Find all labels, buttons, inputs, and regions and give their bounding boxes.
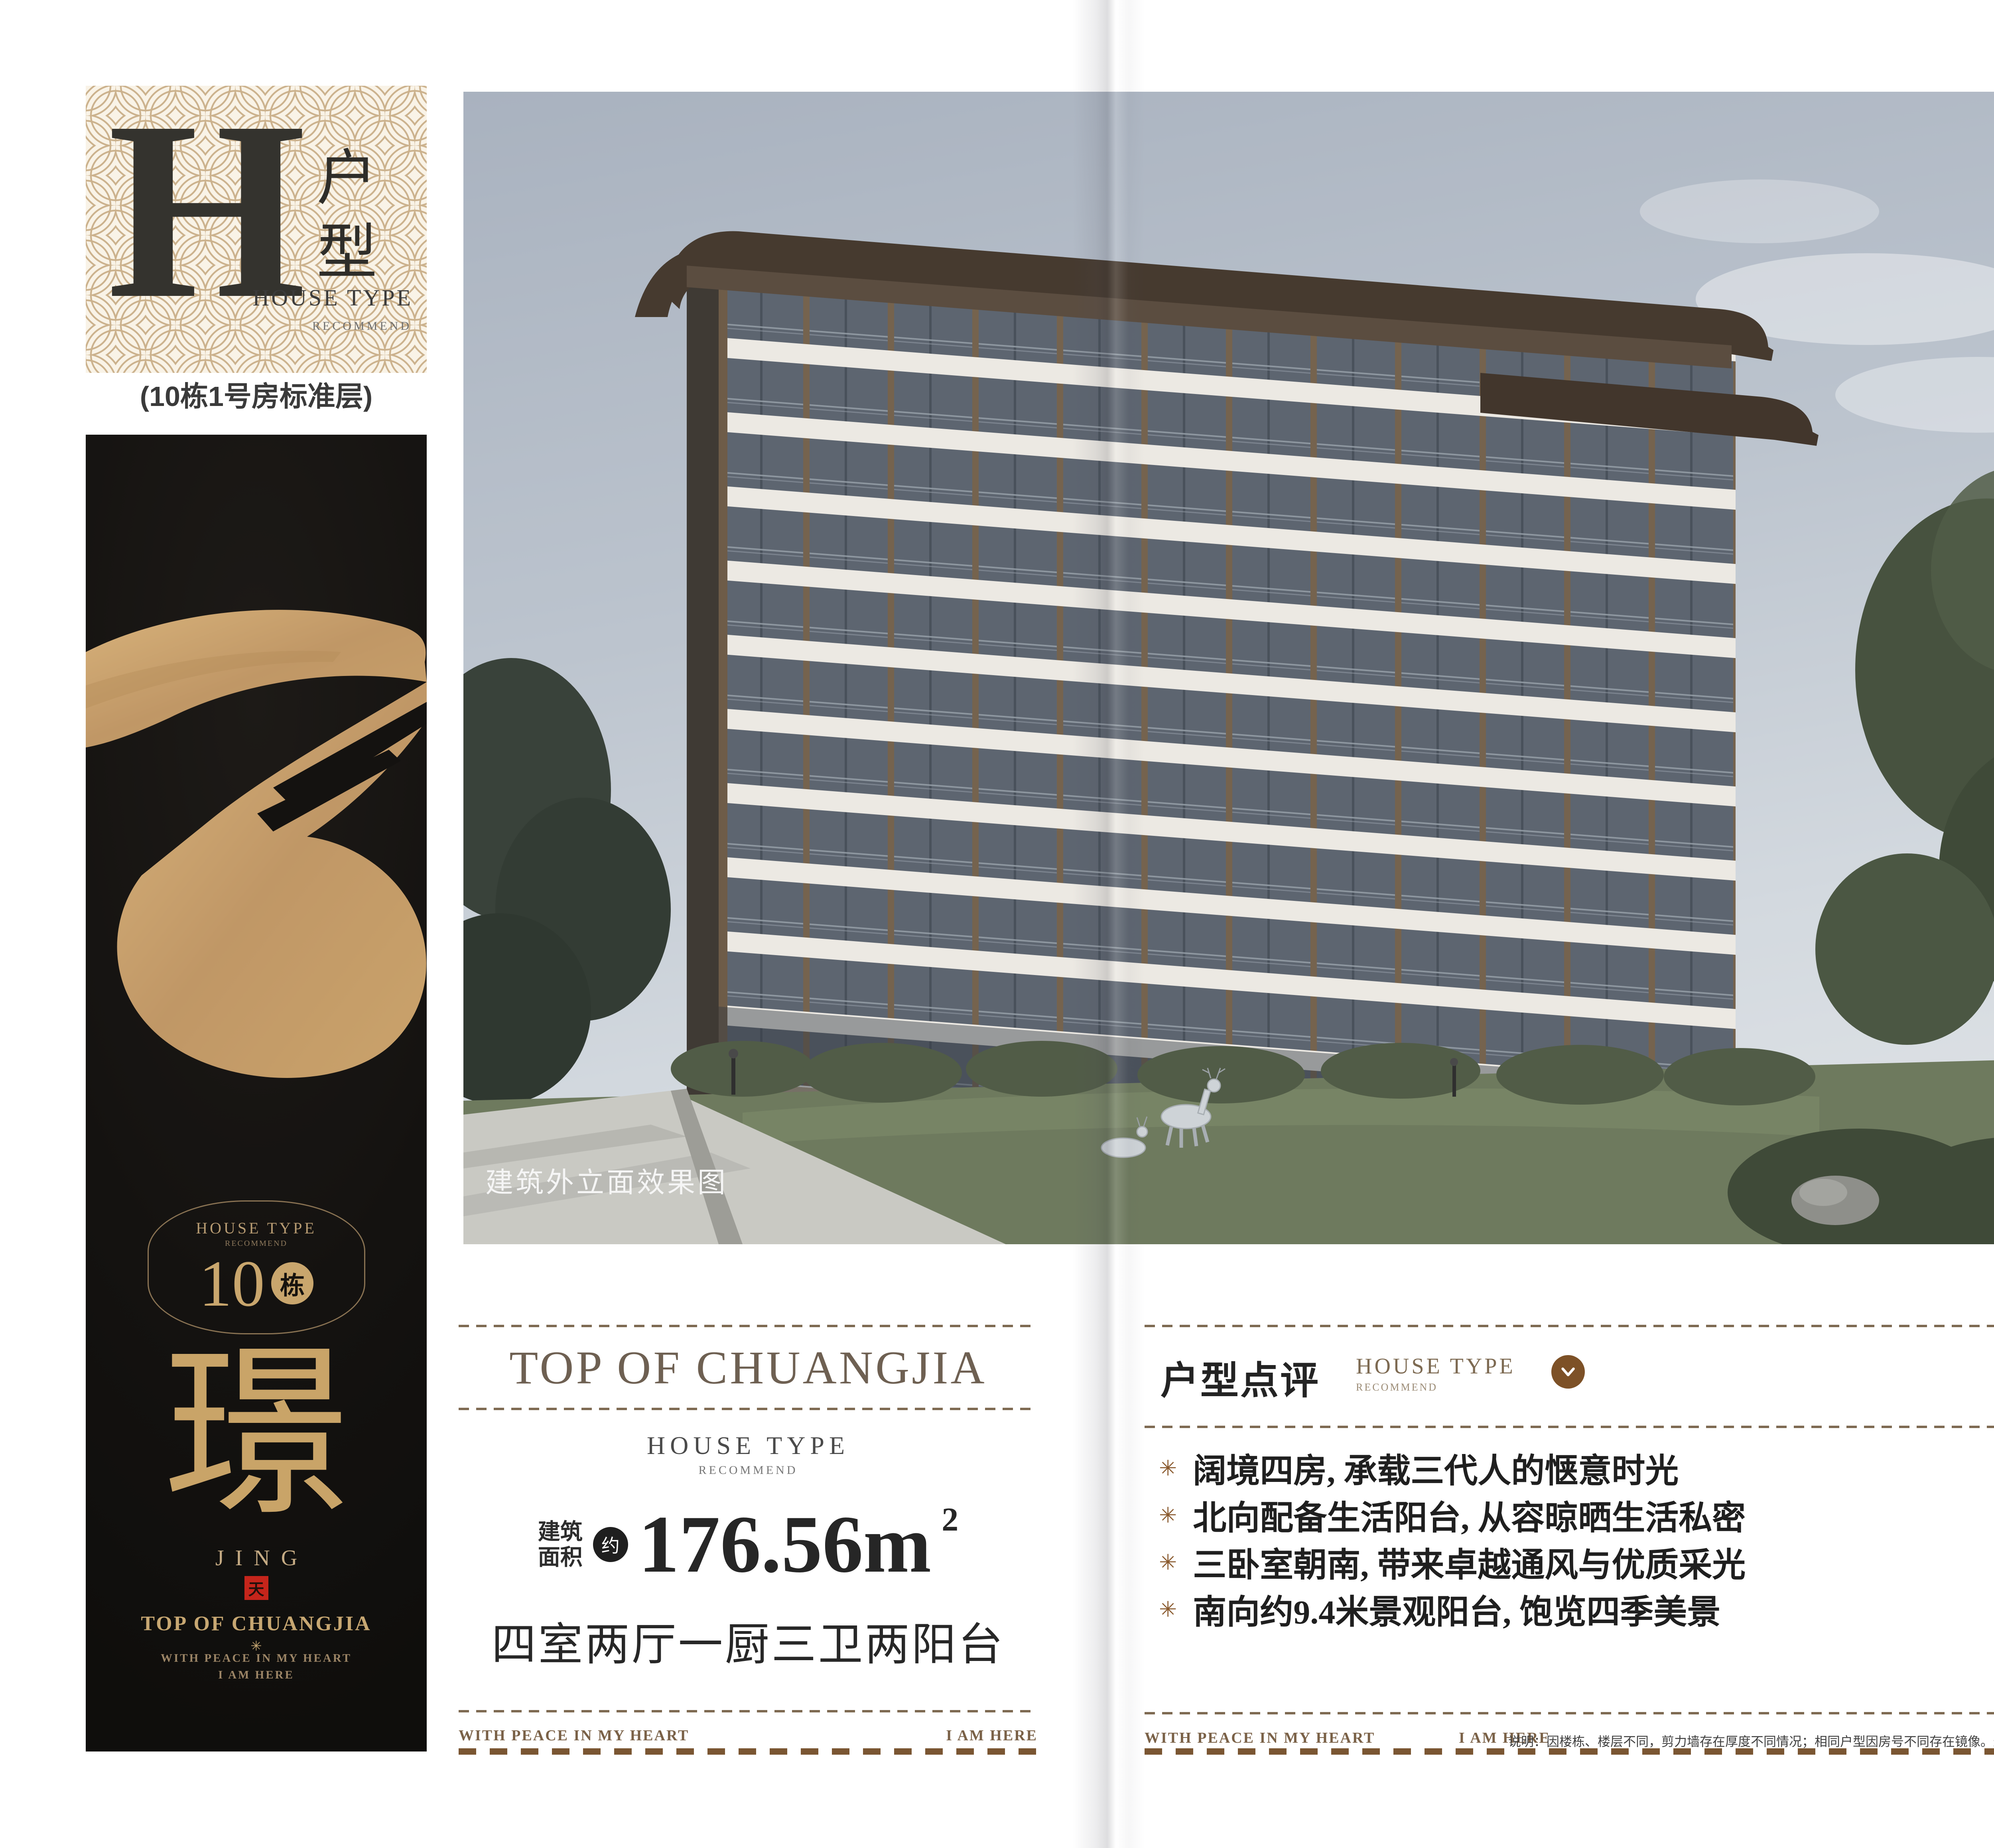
rendering-caption: 建筑外立面效果图	[485, 1160, 728, 1200]
summary-recommend: RECOMMEND	[459, 1464, 1038, 1477]
approx-char: 约	[601, 1531, 620, 1558]
review-block: 户型点评 HOUSE TYPE RECOMMEND ✳ 阔境四房, 承载三代人的…	[1145, 1325, 1994, 1758]
asterisk-bullet-icon: ✳	[1159, 1456, 1177, 1481]
building-rendering-art	[463, 92, 1994, 1244]
asterisk-bullet-icon: ✳	[1159, 1550, 1177, 1575]
divider-thick	[459, 1748, 1038, 1755]
area-value: 176.56m	[638, 1503, 932, 1585]
bullet-text: 南向约9.4米景观阳台, 饱览四季美景	[1193, 1585, 1720, 1633]
house-type-en: HOUSE TYPE	[252, 284, 413, 311]
review-subtitle-small: RECOMMEND	[1356, 1381, 1515, 1393]
footer-left: WITH PEACE IN MY HEART	[459, 1727, 689, 1744]
bullet-text: 阔境四房, 承载三代人的惬意时光	[1193, 1444, 1679, 1492]
summary-house-type: HOUSE TYPE	[459, 1431, 1038, 1460]
review-note: 说明：因楼栋、楼层不同，剪力墙存在厚度不同情况；相同户型因房号不同存在镜像。最终…	[1508, 1732, 1994, 1750]
list-item: ✳ 北向配备生活阳台, 从容晾晒生活私密	[1159, 1491, 1746, 1539]
seal-glyph: 天	[248, 1576, 264, 1600]
building-unit-circle: 栋	[271, 1262, 313, 1304]
emblem-house-type: HOUSE TYPE	[196, 1219, 317, 1237]
divider	[1145, 1325, 1994, 1327]
building-unit-char: 栋	[280, 1265, 305, 1301]
summary-footer: WITH PEACE IN MY HEART I AM HERE	[459, 1727, 1038, 1744]
divider	[459, 1408, 1038, 1410]
gold-calligraphy-art	[86, 495, 427, 1212]
footer-left: WITH PEACE IN MY HEART	[1145, 1729, 1375, 1747]
area-prefix: 建筑 面积	[538, 1519, 583, 1570]
area-sup: 2	[942, 1500, 958, 1539]
review-subtitle: HOUSE TYPE	[1356, 1353, 1515, 1379]
house-type-tab: H 户型 HOUSE TYPE RECOMMEND	[86, 86, 427, 373]
area-prefix-2: 面积	[538, 1545, 583, 1570]
divider	[1145, 1426, 1994, 1428]
asterisk-bullet-icon: ✳	[1159, 1597, 1177, 1622]
review-title: 户型点评	[1161, 1350, 1320, 1405]
asterisk-bullet-icon: ✳	[1159, 1503, 1177, 1528]
divider	[459, 1325, 1038, 1327]
house-type-vertical-label: 户型	[297, 146, 385, 294]
review-header: 户型点评 HOUSE TYPE RECOMMEND	[1161, 1350, 1585, 1405]
review-bullets: ✳ 阔境四房, 承载三代人的惬意时光 ✳ 北向配备生活阳台, 从容晾晒生活私密 …	[1159, 1444, 1746, 1633]
brand-banner: HOUSE TYPE RECOMMEND 10 栋 璟 JING 天 TOP O…	[86, 435, 427, 1751]
red-seal: 天	[244, 1576, 268, 1600]
brochure-spread: H 户型 HOUSE TYPE RECOMMEND (10栋1号房标准层) HO…	[0, 0, 1994, 1848]
area-row: 建筑 面积 约 176.56m 2	[459, 1503, 1038, 1585]
area-prefix-1: 建筑	[538, 1519, 583, 1545]
list-item: ✳ 南向约9.4米景观阳台, 饱览四季美景	[1159, 1586, 1746, 1633]
unit-location-subtitle: (10栋1号房标准层)	[86, 374, 427, 414]
divider	[1145, 1712, 1994, 1714]
building-emblem: HOUSE TYPE RECOMMEND 10 栋	[148, 1200, 365, 1334]
room-configuration: 四室两厅一厨三卫两阳台	[459, 1608, 1038, 1673]
banner-slogan-2: I AM HERE	[86, 1669, 427, 1682]
divider	[459, 1710, 1038, 1712]
summary-title: TOP OF CHUANGJIA	[459, 1341, 1038, 1395]
divider-thick	[1145, 1748, 1994, 1755]
bullet-text: 三卧室朝南, 带来卓越通风与优质采光	[1193, 1538, 1746, 1586]
list-item: ✳ 阔境四房, 承载三代人的惬意时光	[1159, 1444, 1746, 1491]
building-rendering: 建筑外立面效果图	[463, 92, 1994, 1244]
banner-brand: TOP OF CHUANGJIA	[86, 1612, 427, 1635]
footer-right: I AM HERE	[946, 1727, 1038, 1744]
jing-calligraphy: 璟	[86, 1342, 427, 1527]
bullet-text: 北向配备生活阳台, 从容晾晒生活私密	[1193, 1491, 1746, 1539]
list-item: ✳ 三卧室朝南, 带来卓越通风与优质采光	[1159, 1539, 1746, 1586]
approx-circle: 约	[593, 1527, 628, 1562]
banner-slogan-1: WITH PEACE IN MY HEART	[86, 1652, 427, 1665]
house-type-recommend: RECOMMEND	[312, 319, 412, 333]
chevron-down-icon	[1551, 1355, 1585, 1389]
summary-block: TOP OF CHUANGJIA HOUSE TYPE RECOMMEND 建筑…	[459, 1325, 1038, 1758]
jing-pinyin: JING	[86, 1545, 427, 1571]
building-number: 10	[199, 1251, 265, 1316]
